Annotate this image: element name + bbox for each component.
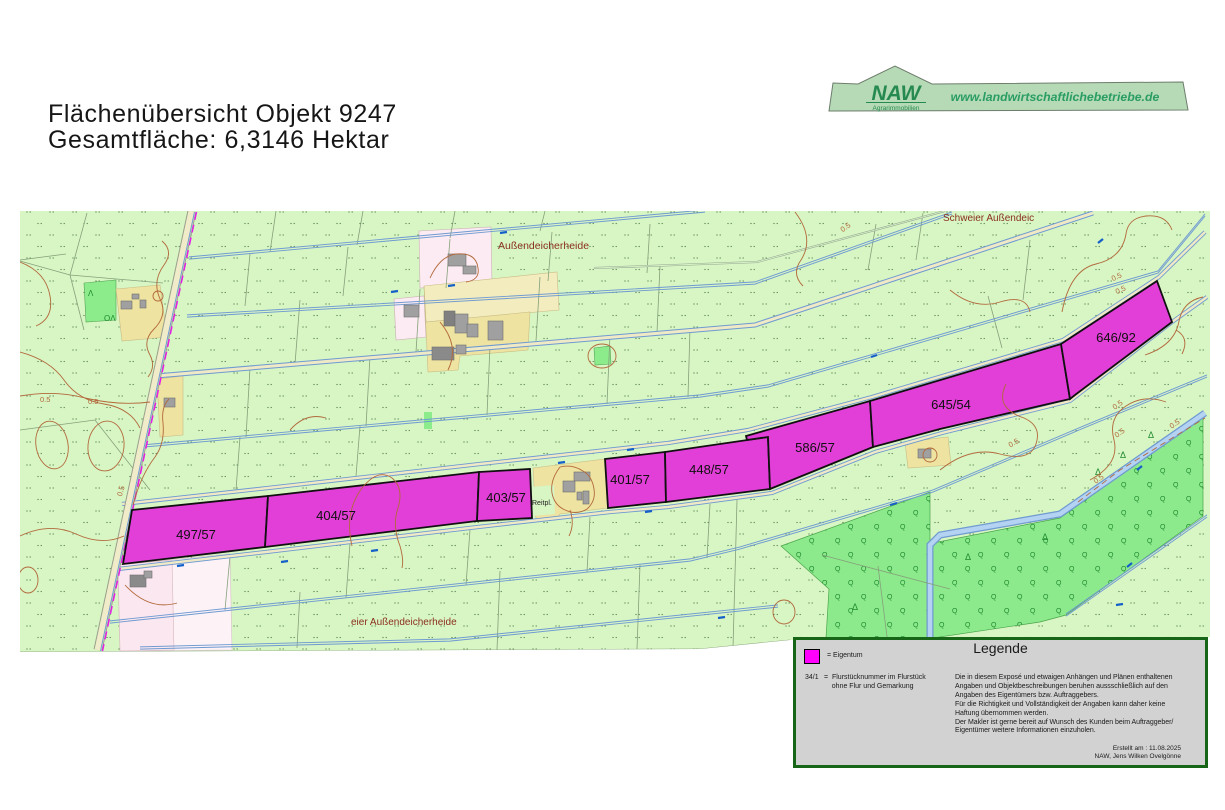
svg-text:403/57: 403/57 [486,490,526,505]
svg-text:OΛ: OΛ [104,314,116,323]
svg-text:497/57: 497/57 [176,527,216,542]
svg-text:Δ: Δ [1120,450,1126,460]
svg-text:Λ: Λ [88,289,94,298]
svg-text:Δ: Δ [852,602,858,612]
svg-text:404/57: 404/57 [316,508,356,523]
svg-text:Außendeicherheide: Außendeicherheide [498,240,589,252]
svg-text:0.5: 0.5 [88,397,98,406]
svg-text:Δ: Δ [965,552,971,562]
svg-text:eier Außendeicherheide: eier Außendeicherheide [351,617,457,628]
svg-text:Δ: Δ [1148,430,1154,440]
svg-text:586/57: 586/57 [795,440,835,455]
svg-text:Δ: Δ [1042,532,1048,542]
svg-text:0.5: 0.5 [40,395,50,404]
svg-text:448/57: 448/57 [689,462,729,477]
svg-text:645/54: 645/54 [931,397,971,412]
svg-text:Schweier Außendeic: Schweier Außendeic [943,213,1034,224]
svg-text:401/57: 401/57 [610,472,650,487]
svg-text:Reitpl.: Reitpl. [532,500,552,507]
svg-text:646/92: 646/92 [1096,330,1136,345]
